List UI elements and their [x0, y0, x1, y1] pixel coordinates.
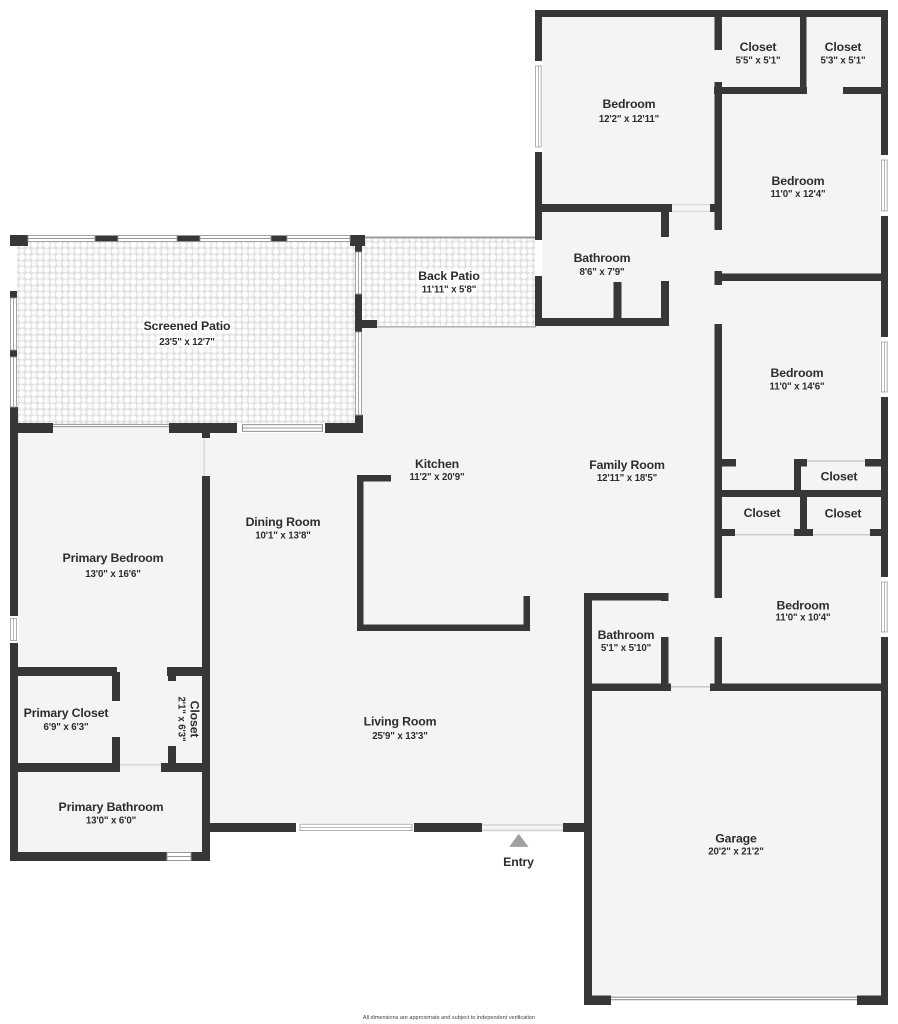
svg-text:Primary Bedroom: Primary Bedroom [63, 551, 164, 565]
svg-text:2'1" x 6'3": 2'1" x 6'3" [176, 696, 187, 741]
svg-text:Bedroom: Bedroom [603, 97, 656, 111]
svg-text:5'1" x 5'10": 5'1" x 5'10" [601, 643, 651, 654]
svg-text:11'0" x 14'6": 11'0" x 14'6" [769, 382, 824, 393]
svg-text:Dining Room: Dining Room [246, 515, 321, 529]
svg-text:Bathroom: Bathroom [574, 251, 631, 265]
svg-text:12'2" x 12'11": 12'2" x 12'11" [599, 114, 659, 125]
svg-text:10'1" x 13'8": 10'1" x 13'8" [255, 531, 311, 542]
svg-text:All dimensions are approximate: All dimensions are approximate and subje… [363, 1015, 535, 1021]
svg-text:Screened Patio: Screened Patio [144, 319, 231, 333]
svg-text:12'11" x 18'5": 12'11" x 18'5" [597, 473, 657, 484]
svg-text:8'6" x 7'9": 8'6" x 7'9" [579, 267, 624, 278]
svg-text:Closet: Closet [744, 506, 781, 520]
svg-text:25'9" x 13'3": 25'9" x 13'3" [372, 731, 428, 742]
svg-text:Bathroom: Bathroom [598, 628, 655, 642]
svg-text:Primary Closet: Primary Closet [24, 706, 109, 720]
svg-text:6'9" x 6'3": 6'9" x 6'3" [43, 722, 88, 733]
svg-text:11'0" x 10'4": 11'0" x 10'4" [775, 613, 830, 624]
svg-text:Closet: Closet [188, 701, 202, 738]
svg-text:Kitchen: Kitchen [415, 457, 459, 471]
svg-text:Closet: Closet [825, 40, 862, 54]
svg-text:20'2" x 21'2": 20'2" x 21'2" [708, 847, 764, 858]
svg-text:Closet: Closet [825, 507, 862, 521]
svg-text:Garage: Garage [715, 832, 757, 846]
svg-text:Family Room: Family Room [589, 458, 665, 472]
svg-text:Bedroom: Bedroom [772, 174, 825, 188]
svg-text:Closet: Closet [821, 470, 858, 484]
svg-text:Bedroom: Bedroom [777, 599, 830, 613]
svg-text:Primary Bathroom: Primary Bathroom [59, 800, 164, 814]
svg-text:5'3" x 5'1": 5'3" x 5'1" [820, 56, 865, 67]
svg-text:Bedroom: Bedroom [771, 366, 824, 380]
svg-text:23'5" x 12'7": 23'5" x 12'7" [159, 337, 215, 348]
svg-text:Back Patio: Back Patio [418, 269, 480, 283]
svg-text:11'11" x 5'8": 11'11" x 5'8" [422, 285, 477, 296]
svg-text:Entry: Entry [503, 855, 534, 869]
svg-text:Living Room: Living Room [364, 715, 437, 729]
svg-text:Closet: Closet [740, 40, 777, 54]
svg-text:13'0" x 6'0": 13'0" x 6'0" [86, 816, 136, 827]
svg-text:5'5" x 5'1": 5'5" x 5'1" [735, 56, 780, 67]
svg-text:13'0" x 16'6": 13'0" x 16'6" [85, 569, 141, 580]
svg-text:11'0" x 12'4": 11'0" x 12'4" [770, 189, 825, 200]
svg-text:11'2" x 20'9": 11'2" x 20'9" [409, 472, 464, 483]
